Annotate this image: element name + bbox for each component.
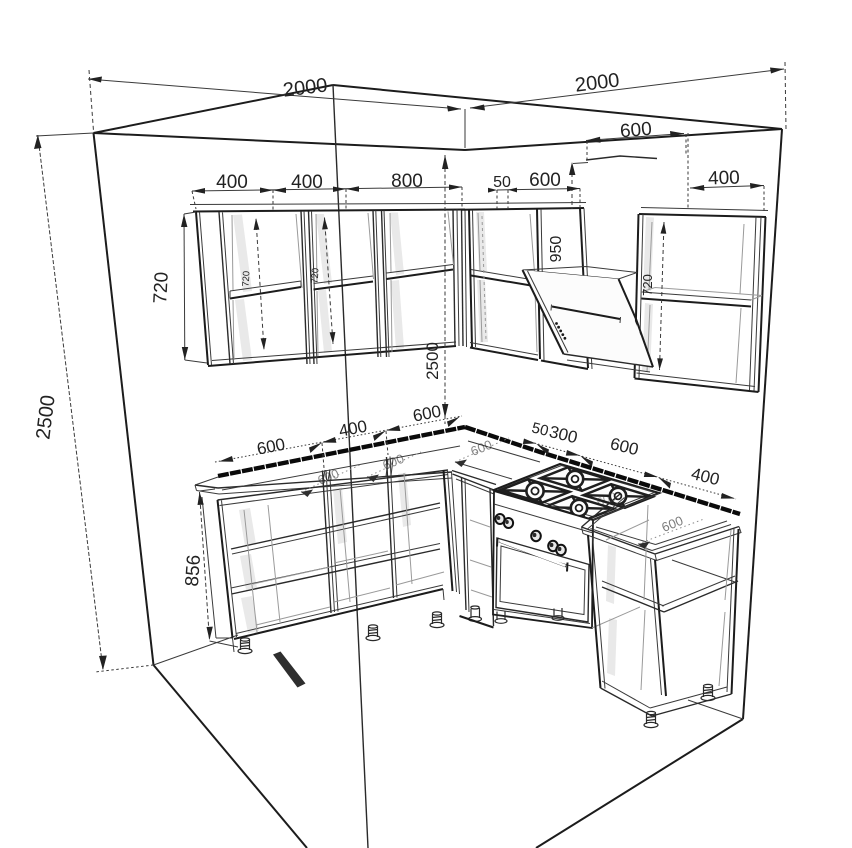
svg-text:400: 400: [708, 167, 740, 189]
svg-text:950: 950: [548, 236, 565, 263]
svg-text:856: 856: [182, 554, 205, 587]
svg-text:50: 50: [493, 174, 511, 191]
svg-text:720: 720: [309, 268, 321, 285]
svg-text:720: 720: [640, 274, 655, 296]
svg-text:400: 400: [216, 172, 248, 193]
svg-text:400: 400: [291, 172, 323, 193]
svg-text:600: 600: [529, 170, 561, 191]
svg-text:600: 600: [619, 119, 652, 143]
svg-text:800: 800: [391, 171, 423, 192]
svg-text:2500: 2500: [423, 342, 442, 380]
svg-text:720: 720: [240, 271, 252, 288]
svg-text:720: 720: [150, 271, 173, 304]
